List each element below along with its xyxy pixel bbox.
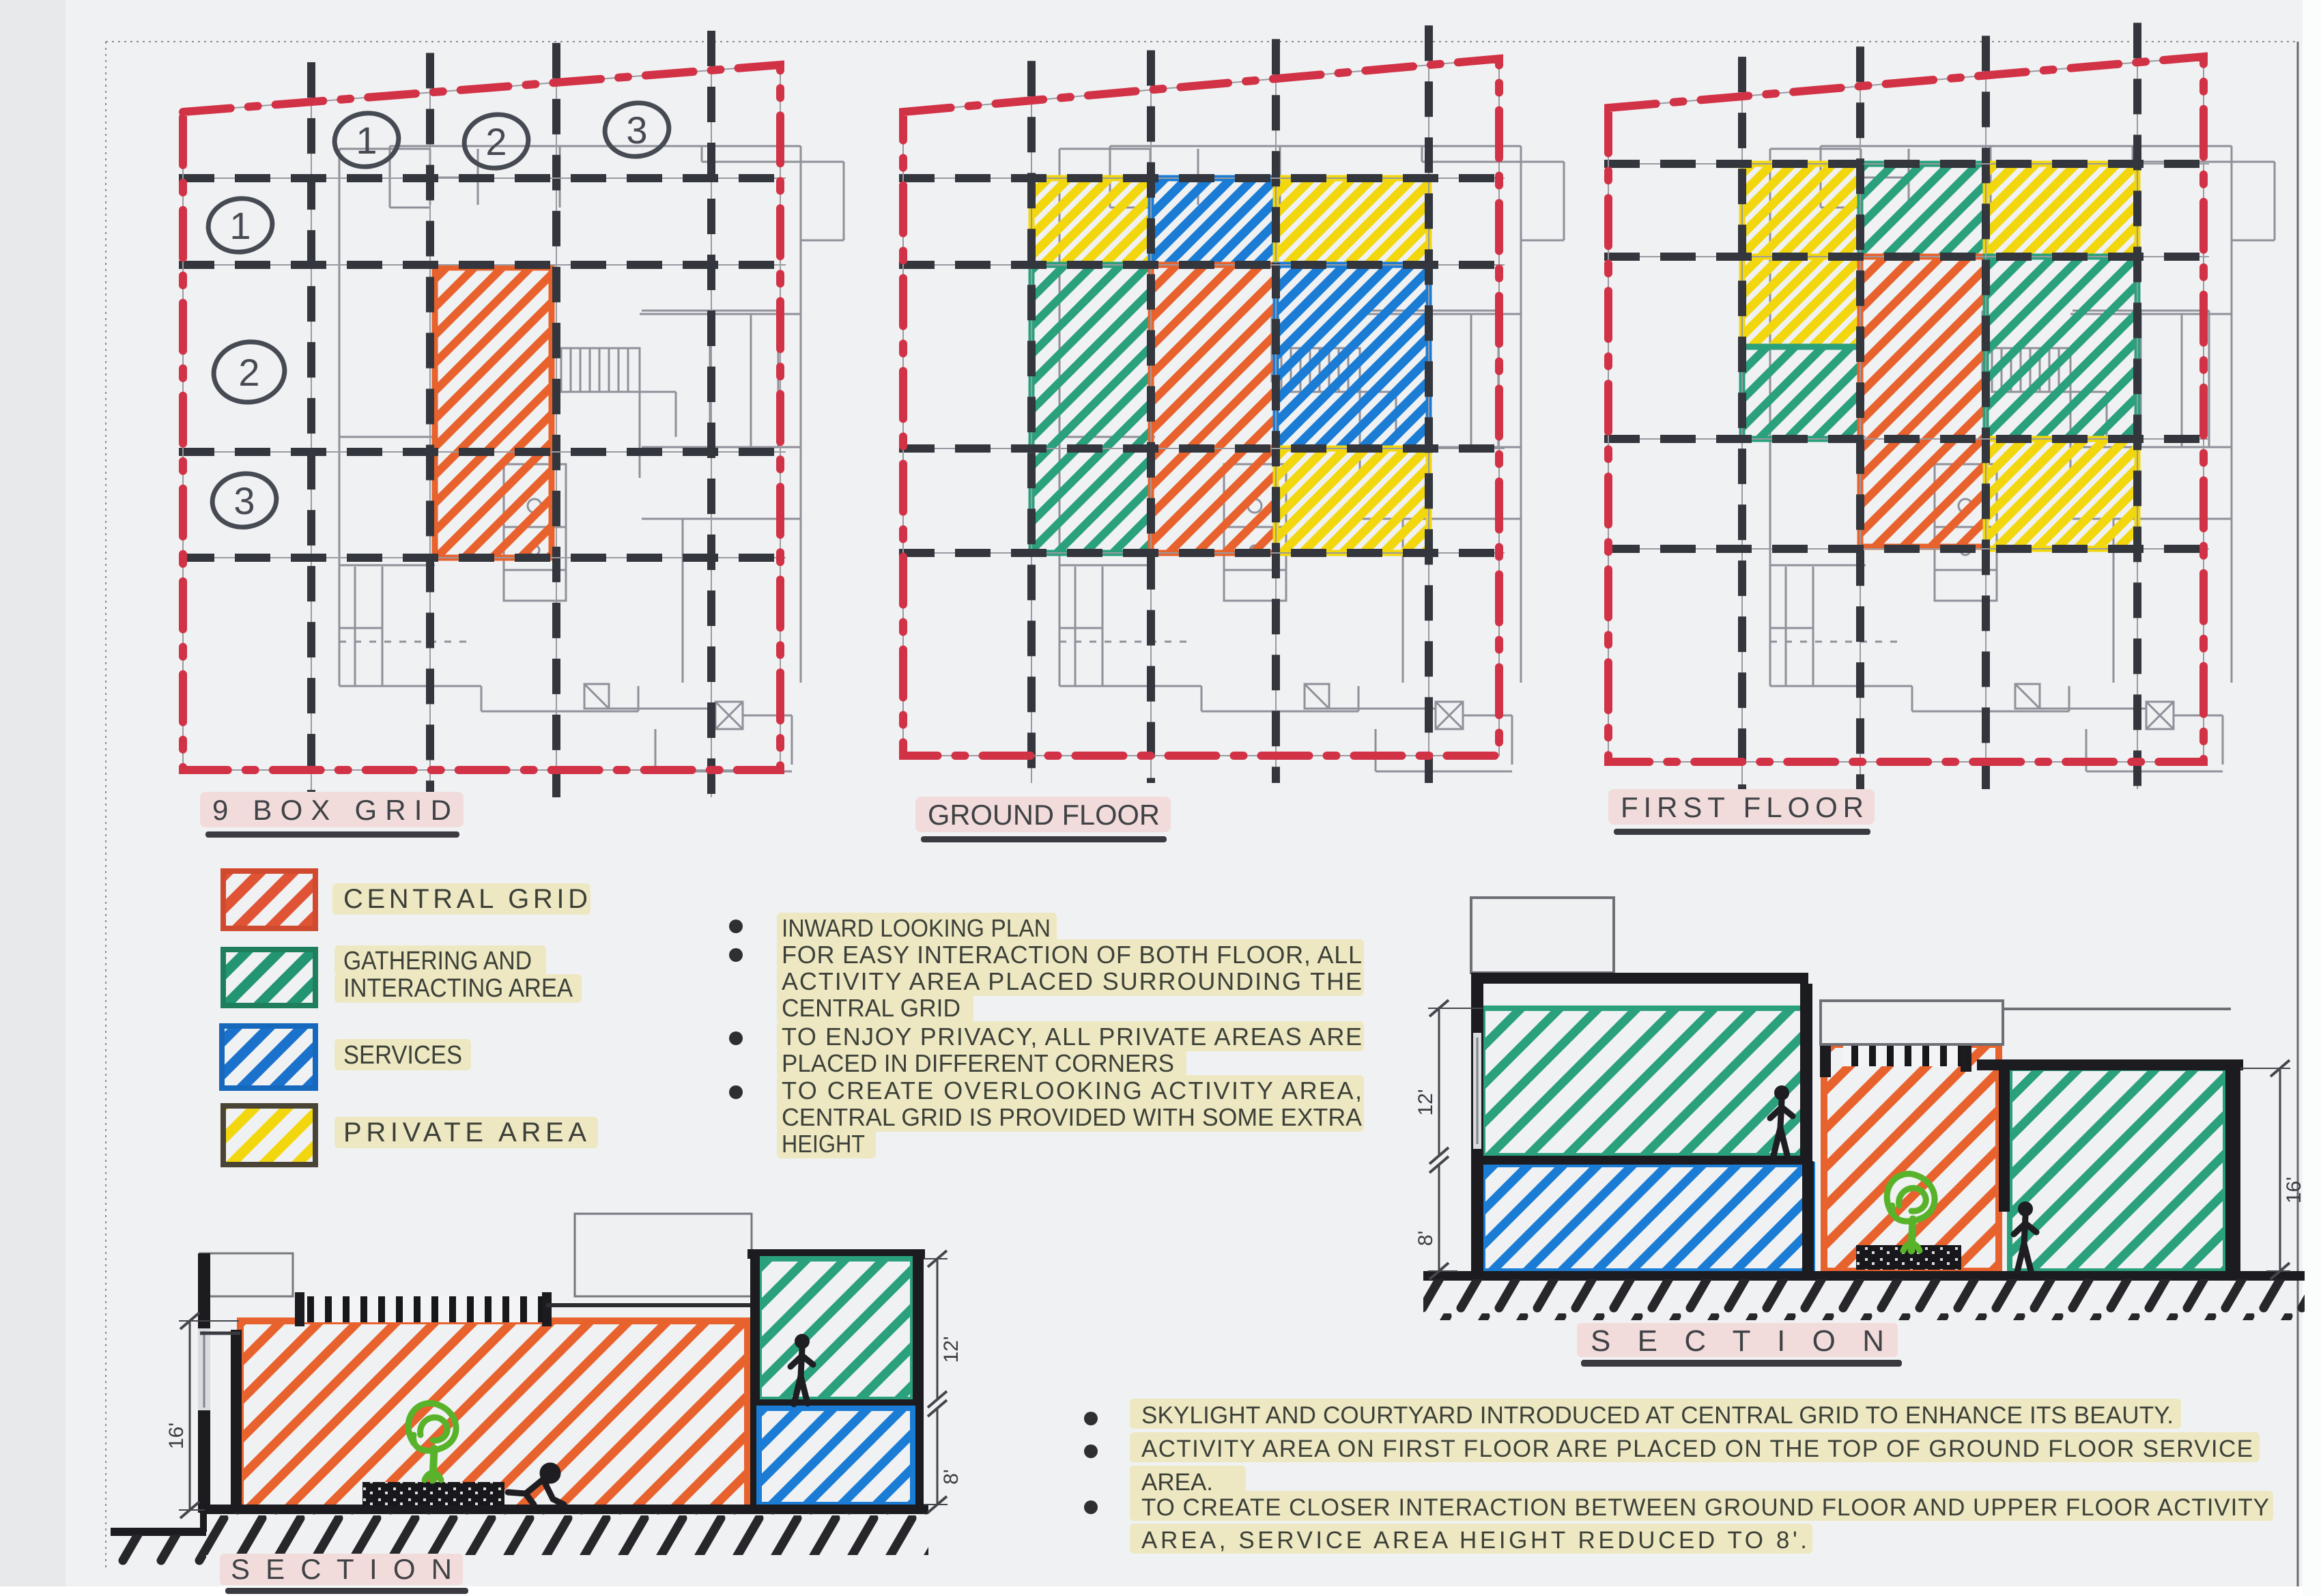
- svg-text:TO ENJOY PRIVACY, ALL PRIVATE: TO ENJOY PRIVACY, ALL PRIVATE AREAS ARE: [782, 1023, 1362, 1051]
- svg-text:CENTRAL GRID IS PROVIDED WITH: CENTRAL GRID IS PROVIDED WITH SOME EXTRA: [782, 1103, 1362, 1131]
- svg-text:8': 8': [940, 1469, 963, 1484]
- svg-text:16': 16': [2283, 1177, 2305, 1203]
- svg-text:12': 12': [1414, 1089, 1437, 1115]
- svg-text:CENTRAL GRID: CENTRAL GRID: [343, 884, 588, 914]
- svg-text:TO CREATE OVERLOOKING ACTIVITY: TO CREATE OVERLOOKING ACTIVITY AREA,: [782, 1077, 1362, 1105]
- svg-text:FOR EASY INTERACTION OF BOTH F: FOR EASY INTERACTION OF BOTH FLOOR, ALL: [782, 941, 1362, 969]
- svg-text:GATHERING AND: GATHERING AND: [343, 947, 532, 975]
- svg-text:1: 1: [356, 119, 377, 162]
- svg-text:2: 2: [485, 120, 507, 163]
- svg-text:SERVICES: SERVICES: [343, 1041, 462, 1070]
- svg-text:8': 8': [1414, 1231, 1437, 1246]
- svg-text:INWARD LOOKING PLAN: INWARD LOOKING PLAN: [782, 914, 1051, 942]
- svg-text:PRIVATE AREA: PRIVATE AREA: [343, 1117, 586, 1148]
- svg-text:ACTIVITY AREA ON FIRST FLOOR A: ACTIVITY AREA ON FIRST FLOOR ARE PLACED …: [1141, 1436, 2253, 1462]
- svg-text:2: 2: [238, 351, 259, 394]
- svg-text:PLACED IN DIFFERENT CORNERS: PLACED IN DIFFERENT CORNERS: [782, 1049, 1174, 1077]
- svg-text:TO CREATE CLOSER INTERACTION B: TO CREATE CLOSER INTERACTION BETWEEN GRO…: [1141, 1494, 2269, 1521]
- svg-text:CENTRAL GRID: CENTRAL GRID: [782, 994, 960, 1022]
- svg-text:GROUND FLOOR: GROUND FLOOR: [928, 799, 1160, 831]
- svg-text:3: 3: [233, 479, 255, 522]
- svg-text:1: 1: [229, 204, 251, 247]
- svg-text:INTERACTING AREA: INTERACTING AREA: [343, 974, 573, 1003]
- svg-text:12': 12': [940, 1336, 963, 1363]
- svg-text:16': 16': [165, 1423, 188, 1449]
- svg-text:SKYLIGHT AND COURTYARD INTRODU: SKYLIGHT AND COURTYARD INTRODUCED AT CEN…: [1141, 1402, 2174, 1429]
- svg-text:3: 3: [626, 109, 647, 152]
- svg-text:AREA, SERVICE AREA HEIGHT REDU: AREA, SERVICE AREA HEIGHT REDUCED TO 8'.: [1141, 1527, 1807, 1554]
- svg-text:ACTIVITY AREA PLACED SURROUNDI: ACTIVITY AREA PLACED SURROUNDING THE: [782, 967, 1362, 995]
- svg-text:HEIGHT: HEIGHT: [782, 1130, 865, 1158]
